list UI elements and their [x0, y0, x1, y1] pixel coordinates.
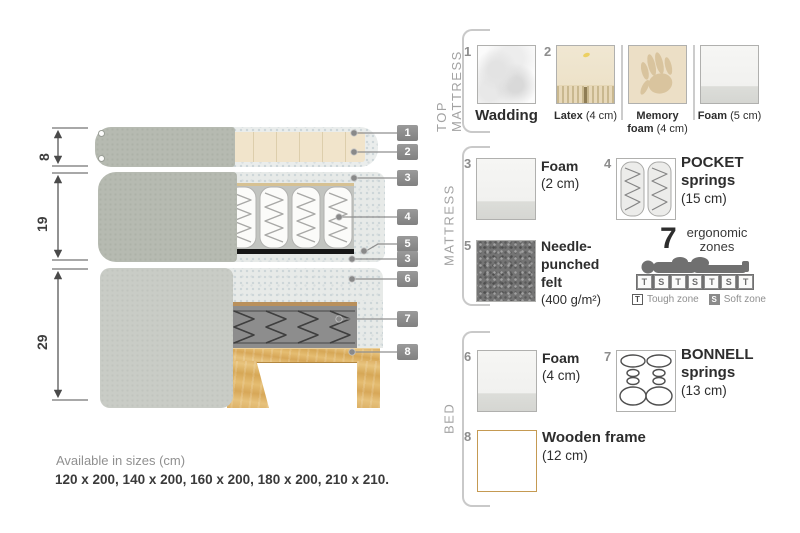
callout-box-6: 6	[397, 271, 418, 287]
wooden-frame-left-leg	[227, 361, 269, 408]
legend-number-8: 8	[464, 429, 471, 444]
latex-caption: Latex (4 cm)	[548, 110, 623, 122]
sizes-values: 120 x 200, 140 x 200, 160 x 200, 180 x 2…	[55, 472, 389, 487]
wooden-frame-caption: Wooden frame (12 cm)	[542, 429, 646, 465]
foam-2cm-caption: Foam (2 cm)	[541, 157, 579, 193]
callout-box-7: 7	[397, 311, 418, 327]
bonnell-springs-icon	[617, 351, 675, 411]
pocket-size: (15 cm)	[681, 190, 744, 208]
wooden-frame-swatch	[477, 430, 537, 492]
pocket-name: POCKET	[681, 154, 744, 172]
memory-foam-caption: Memory foam (4 cm)	[620, 110, 695, 136]
wooden-frame-right-leg	[357, 361, 380, 408]
pocket-name2: springs	[681, 172, 744, 190]
pocket-springs-cutaway	[227, 186, 354, 249]
callout-box-3b: 3	[397, 251, 418, 267]
legend-number-5: 5	[464, 238, 471, 253]
zone-cell: S	[688, 275, 703, 289]
pocket-springs-swatch	[616, 158, 676, 220]
felt-name3: felt	[541, 273, 601, 291]
soft-zone-label: Soft zone	[724, 294, 766, 305]
bonnell-name2: springs	[681, 364, 754, 382]
callout-box-5: 5	[397, 236, 418, 252]
zone-cell: T	[671, 275, 686, 289]
bonnell-caption: BONNELL springs (13 cm)	[681, 346, 754, 400]
foam-5cm-swatch	[700, 45, 759, 104]
tough-zone-icon: T	[632, 294, 643, 305]
bed-side-foam	[356, 300, 383, 348]
sizes-title: Available in sizes (cm)	[56, 453, 185, 468]
needle-punched-felt-layer	[227, 249, 354, 254]
bonnell-wire-drawing	[226, 306, 357, 348]
foam4-name: Foam	[542, 349, 580, 367]
zone-cell: T	[704, 275, 719, 289]
zones-row: T S T S T S T	[636, 274, 754, 290]
tough-zone-label: Tough zone	[647, 294, 699, 305]
memory-foam-swatch	[628, 45, 687, 104]
legend-number-1: 1	[464, 44, 471, 59]
foam-4cm-caption: Foam (4 cm)	[542, 349, 580, 385]
legend-number-3: 3	[464, 156, 471, 171]
legend-number-2: 2	[544, 44, 551, 59]
zone-cell: S	[721, 275, 736, 289]
foam-2cm-swatch	[476, 158, 536, 220]
legend-number-7: 7	[604, 349, 611, 364]
zones-label-1: ergonomic	[686, 226, 748, 240]
legend-number-6: 6	[464, 349, 471, 364]
zones-count: 7	[660, 222, 677, 256]
legend-number-4: 4	[604, 156, 611, 171]
zone-cell: T	[637, 275, 652, 289]
callout-box-3a: 3	[397, 170, 418, 186]
latex-slit	[584, 87, 587, 103]
cover-snap-button	[98, 130, 105, 137]
zone-cell: T	[738, 275, 753, 289]
handprint-icon	[629, 46, 686, 103]
pocket-springs-icon	[617, 159, 675, 219]
frame-size: (12 cm)	[542, 447, 646, 465]
latex-swatch	[556, 45, 615, 104]
zones-label: ergonomic zones	[686, 226, 748, 254]
felt-swatch	[476, 240, 536, 302]
dimension-bed: 29	[34, 318, 50, 350]
zones-key: T Tough zone S Soft zone	[632, 294, 766, 305]
callout-box-8: 8	[397, 344, 418, 360]
zones-label-2: zones	[686, 240, 748, 254]
section-label-top-mattress: TOP MATTRESS	[441, 28, 457, 132]
wadding-swatch	[477, 45, 536, 104]
bonnell-springs-swatch	[616, 350, 676, 412]
mattress-construction-infographic: 8 19 29 1 2 3 4 5 3 6 7 8 Available in s…	[0, 0, 800, 533]
felt-caption: Needle- punched felt (400 g/m²)	[541, 237, 601, 309]
felt-name2: punched	[541, 255, 601, 273]
foam5-name: Foam	[698, 110, 727, 122]
bed-front-panel	[100, 268, 233, 408]
memory-name2: foam	[627, 123, 653, 135]
bonnell-springs-cutaway	[226, 306, 357, 348]
bonnell-size: (13 cm)	[681, 382, 754, 400]
soft-zone-icon: S	[709, 294, 720, 305]
memory-name: Memory	[636, 110, 678, 122]
memory-size: (4 cm)	[657, 123, 688, 135]
callout-box-2: 2	[397, 144, 418, 160]
foam-5cm-caption: Foam (5 cm)	[692, 110, 767, 122]
callout-box-4: 4	[397, 209, 418, 225]
option-divider	[621, 45, 623, 120]
top-mattress-cover	[95, 127, 235, 167]
cover-snap-button	[98, 155, 105, 162]
latex-size: (4 cm)	[586, 110, 617, 122]
top-mattress-latex-blocks	[231, 132, 365, 162]
sleeping-person-icon	[636, 254, 754, 276]
dimension-mattress: 19	[34, 200, 50, 232]
section-label-mattress: MATTRESS	[441, 168, 457, 282]
frame-name: Wooden frame	[542, 429, 646, 447]
dimension-top-mattress: 8	[36, 133, 52, 161]
felt-size: (400 g/m²)	[541, 291, 601, 309]
latex-name: Latex	[554, 110, 583, 122]
foam4-size: (4 cm)	[542, 367, 580, 385]
section-label-bed: BED	[441, 395, 457, 441]
felt-name: Needle-	[541, 237, 601, 255]
foam-4cm-swatch	[477, 350, 537, 412]
foam2-size: (2 cm)	[541, 175, 579, 193]
wadding-caption: Wadding	[469, 107, 544, 124]
bonnell-name: BONNELL	[681, 346, 754, 364]
option-divider	[693, 45, 695, 120]
pocket-springs-caption: POCKET springs (15 cm)	[681, 154, 744, 208]
zone-cell: S	[654, 275, 669, 289]
callout-box-1: 1	[397, 125, 418, 141]
mattress-cover	[98, 172, 237, 262]
ergonomic-zones-block: 7 ergonomic zones T S T S T S T T	[630, 222, 780, 308]
foam5-size: (5 cm)	[730, 110, 761, 122]
foam2-name: Foam	[541, 157, 579, 175]
latex-butterfly	[582, 52, 590, 58]
